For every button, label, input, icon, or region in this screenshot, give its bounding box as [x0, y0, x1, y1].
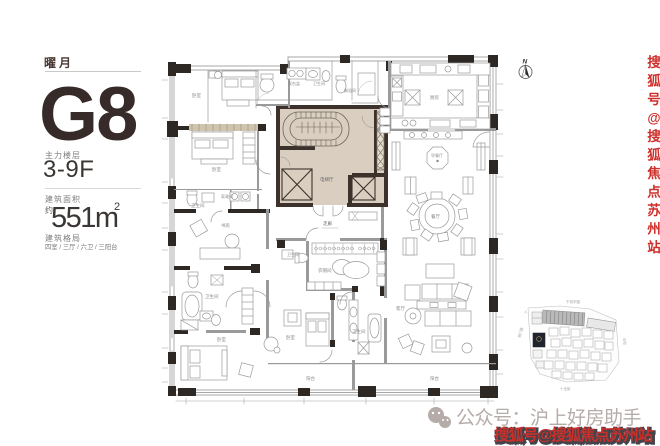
- svg-text:号: 号: [647, 92, 660, 107]
- svg-text:家政间: 家政间: [221, 193, 233, 199]
- svg-text:仓街: 仓街: [622, 338, 628, 346]
- svg-text:@: @: [647, 111, 660, 126]
- svg-text:书房: 书房: [221, 222, 230, 229]
- svg-text:阳台: 阳台: [430, 375, 439, 382]
- svg-text:卫生间: 卫生间: [191, 202, 205, 209]
- svg-text:卧室: 卧室: [212, 166, 221, 173]
- svg-text:狐: 狐: [647, 147, 660, 163]
- svg-text:走廊: 走廊: [323, 220, 332, 227]
- svg-text:卫生间: 卫生间: [287, 251, 299, 257]
- svg-text:⼊: ⼊: [524, 309, 528, 314]
- svg-text:建筑格局: 建筑格局: [45, 233, 81, 243]
- svg-text:卫生间: 卫生间: [313, 80, 325, 86]
- svg-text:卧室: 卧室: [217, 336, 226, 343]
- svg-text:站: 站: [647, 239, 660, 255]
- svg-text:N: N: [523, 59, 528, 66]
- svg-text:曜月: 曜月: [44, 56, 74, 70]
- svg-text:衣帽间: 衣帽间: [318, 267, 332, 274]
- svg-text:3-9F: 3-9F: [43, 156, 94, 183]
- svg-text:淋浴间: 淋浴间: [344, 87, 356, 93]
- svg-text:搜: 搜: [647, 128, 660, 144]
- svg-text:搜狐号@搜狐焦点苏州站: 搜狐号@搜狐焦点苏州站: [494, 425, 654, 444]
- svg-text:点: 点: [647, 184, 660, 200]
- svg-text:卫生间: 卫生间: [352, 328, 366, 335]
- svg-text:焦: 焦: [646, 165, 660, 181]
- svg-text:搜: 搜: [647, 54, 660, 70]
- svg-text:卧室: 卧室: [192, 92, 201, 99]
- svg-text:苏: 苏: [647, 202, 660, 218]
- svg-text:干将东路: 干将东路: [566, 299, 580, 304]
- svg-text:州: 州: [646, 222, 660, 237]
- svg-text:公众号：沪上好房助手: 公众号：沪上好房助手: [456, 407, 642, 429]
- svg-text:551m: 551m: [51, 202, 118, 234]
- svg-text:十全街: 十全街: [560, 386, 571, 391]
- svg-text:四室 / 三厅 / 六卫 / 三阳台: 四室 / 三厅 / 六卫 / 三阳台: [45, 242, 117, 251]
- svg-text:G8: G8: [39, 72, 136, 157]
- svg-text:阳台: 阳台: [306, 375, 315, 382]
- svg-text:2: 2: [114, 201, 120, 213]
- svg-text:厨房: 厨房: [430, 94, 439, 101]
- svg-text:双台盆: 双台盆: [288, 80, 300, 86]
- svg-text:电梯厅: 电梯厅: [320, 176, 334, 183]
- svg-text:早餐厅: 早餐厅: [431, 152, 443, 158]
- svg-text:客厅: 客厅: [396, 305, 405, 312]
- svg-text:狐: 狐: [647, 73, 660, 89]
- svg-text:卧室: 卧室: [286, 334, 295, 341]
- svg-text:卫生间: 卫生间: [205, 293, 219, 300]
- svg-text:餐厅: 餐厅: [431, 213, 440, 220]
